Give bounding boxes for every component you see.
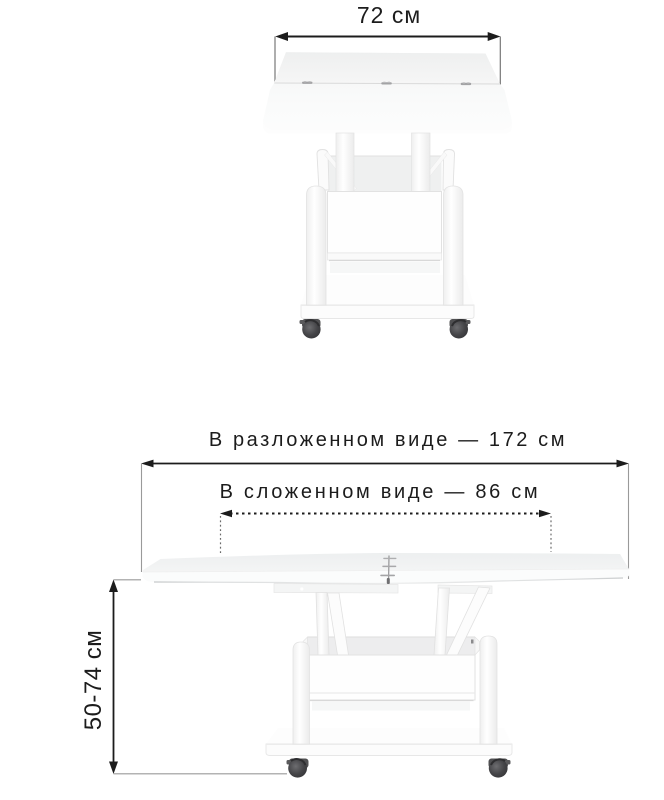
svg-text:50-74 см: 50-74 см [80,630,107,731]
svg-text:В сложенном виде — 86 см: В сложенном виде — 86 см [220,481,541,503]
svg-text:72 см: 72 см [357,2,421,28]
svg-text:В разложенном виде — 172 см: В разложенном виде — 172 см [209,429,567,451]
